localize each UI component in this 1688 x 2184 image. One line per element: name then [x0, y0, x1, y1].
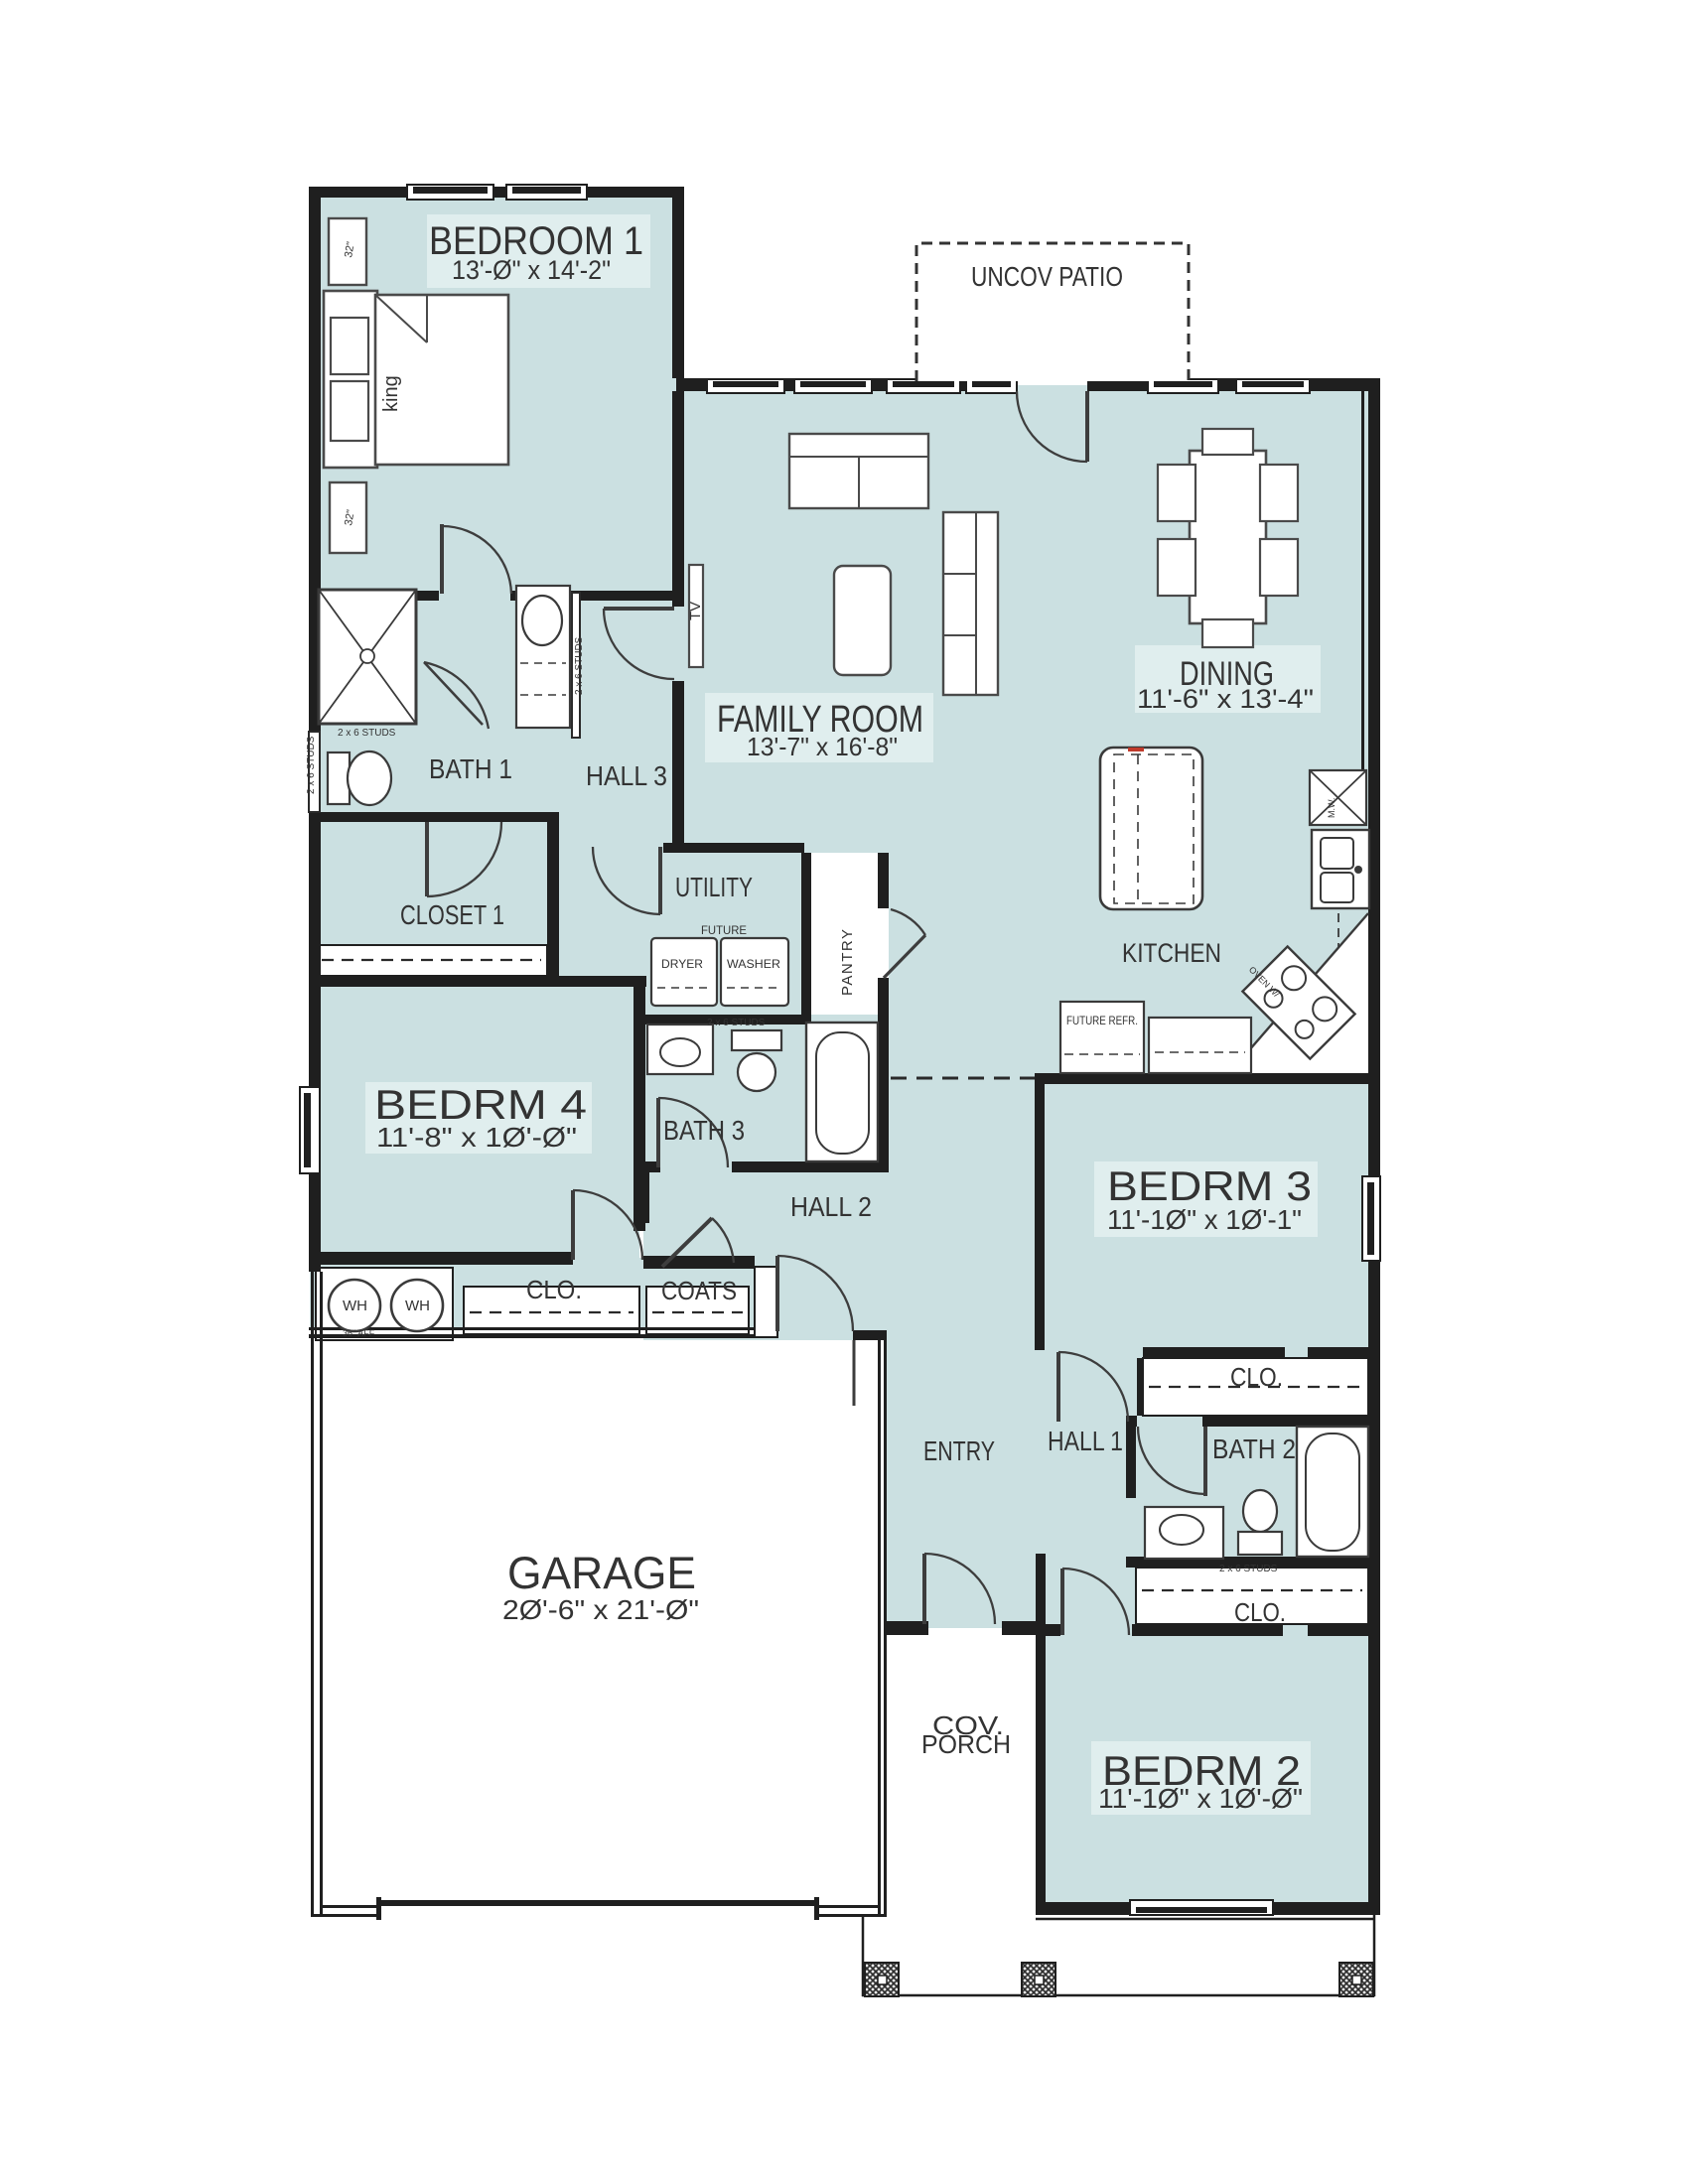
svg-text:GARAGE: GARAGE	[507, 1548, 696, 1598]
svg-text:BEDRM 4: BEDRM 4	[374, 1081, 587, 1128]
svg-text:36" AFF: 36" AFF	[343, 1328, 375, 1338]
svg-text:BEDRM 3: BEDRM 3	[1107, 1162, 1312, 1209]
svg-text:11'-8" x 1Ø'-Ø": 11'-8" x 1Ø'-Ø"	[376, 1122, 577, 1153]
svg-text:CLO.: CLO.	[1234, 1597, 1286, 1627]
svg-text:ENTRY: ENTRY	[923, 1435, 995, 1466]
svg-text:CLO.: CLO.	[1230, 1362, 1283, 1392]
svg-text:KITCHEN: KITCHEN	[1122, 938, 1221, 968]
svg-text:BATH 3: BATH 3	[663, 1115, 745, 1146]
svg-text:HALL 1: HALL 1	[1048, 1426, 1123, 1456]
svg-text:DRYER: DRYER	[661, 957, 703, 971]
svg-text:king: king	[380, 375, 402, 412]
svg-text:2 x 6 STUDS: 2 x 6 STUDS	[574, 636, 585, 695]
svg-text:PORCH: PORCH	[921, 1729, 1011, 1759]
svg-text:FUTURE REFR.: FUTURE REFR.	[1066, 1014, 1138, 1027]
svg-text:WASHER: WASHER	[727, 957, 780, 971]
svg-text:11'-1Ø" x 1Ø'-1": 11'-1Ø" x 1Ø'-1"	[1107, 1204, 1302, 1235]
svg-text:PANTRY: PANTRY	[839, 928, 856, 996]
svg-text:11'-1Ø" x 1Ø'-Ø": 11'-1Ø" x 1Ø'-Ø"	[1098, 1783, 1303, 1814]
svg-text:UTILITY: UTILITY	[675, 872, 753, 902]
svg-text:M.W.: M.W.	[1327, 798, 1336, 819]
svg-text:2Ø'-6" x 21'-Ø": 2Ø'-6" x 21'-Ø"	[502, 1594, 699, 1625]
svg-text:13'-7" x 16'-8": 13'-7" x 16'-8"	[747, 732, 898, 761]
svg-text:2 x 6 STUDS: 2 x 6 STUDS	[306, 736, 317, 794]
svg-text:HALL 2: HALL 2	[790, 1191, 872, 1222]
svg-text:CLO.: CLO.	[526, 1275, 582, 1304]
svg-text:11'-6" x 13'-4": 11'-6" x 13'-4"	[1137, 684, 1314, 714]
svg-text:CLOSET 1: CLOSET 1	[400, 899, 504, 930]
svg-text:2 x 6 STUDS: 2 x 6 STUDS	[707, 1018, 766, 1028]
svg-text:WH: WH	[343, 1297, 367, 1314]
svg-text:WH: WH	[405, 1297, 430, 1314]
svg-text:BATH 2: BATH 2	[1212, 1433, 1296, 1464]
svg-text:13'-Ø" x 14'-2": 13'-Ø" x 14'-2"	[452, 255, 611, 285]
svg-text:HALL 3: HALL 3	[586, 760, 667, 791]
svg-text:COATS: COATS	[661, 1276, 737, 1305]
svg-text:2 x 6 STUDS: 2 x 6 STUDS	[1219, 1564, 1278, 1574]
svg-text:2 x 6 STUDS: 2 x 6 STUDS	[338, 728, 396, 739]
svg-text:UNCOV PATIO: UNCOV PATIO	[971, 261, 1123, 292]
svg-text:FUTURE: FUTURE	[701, 923, 747, 937]
svg-text:BATH 1: BATH 1	[429, 753, 512, 784]
svg-text:TV: TV	[687, 602, 704, 620]
